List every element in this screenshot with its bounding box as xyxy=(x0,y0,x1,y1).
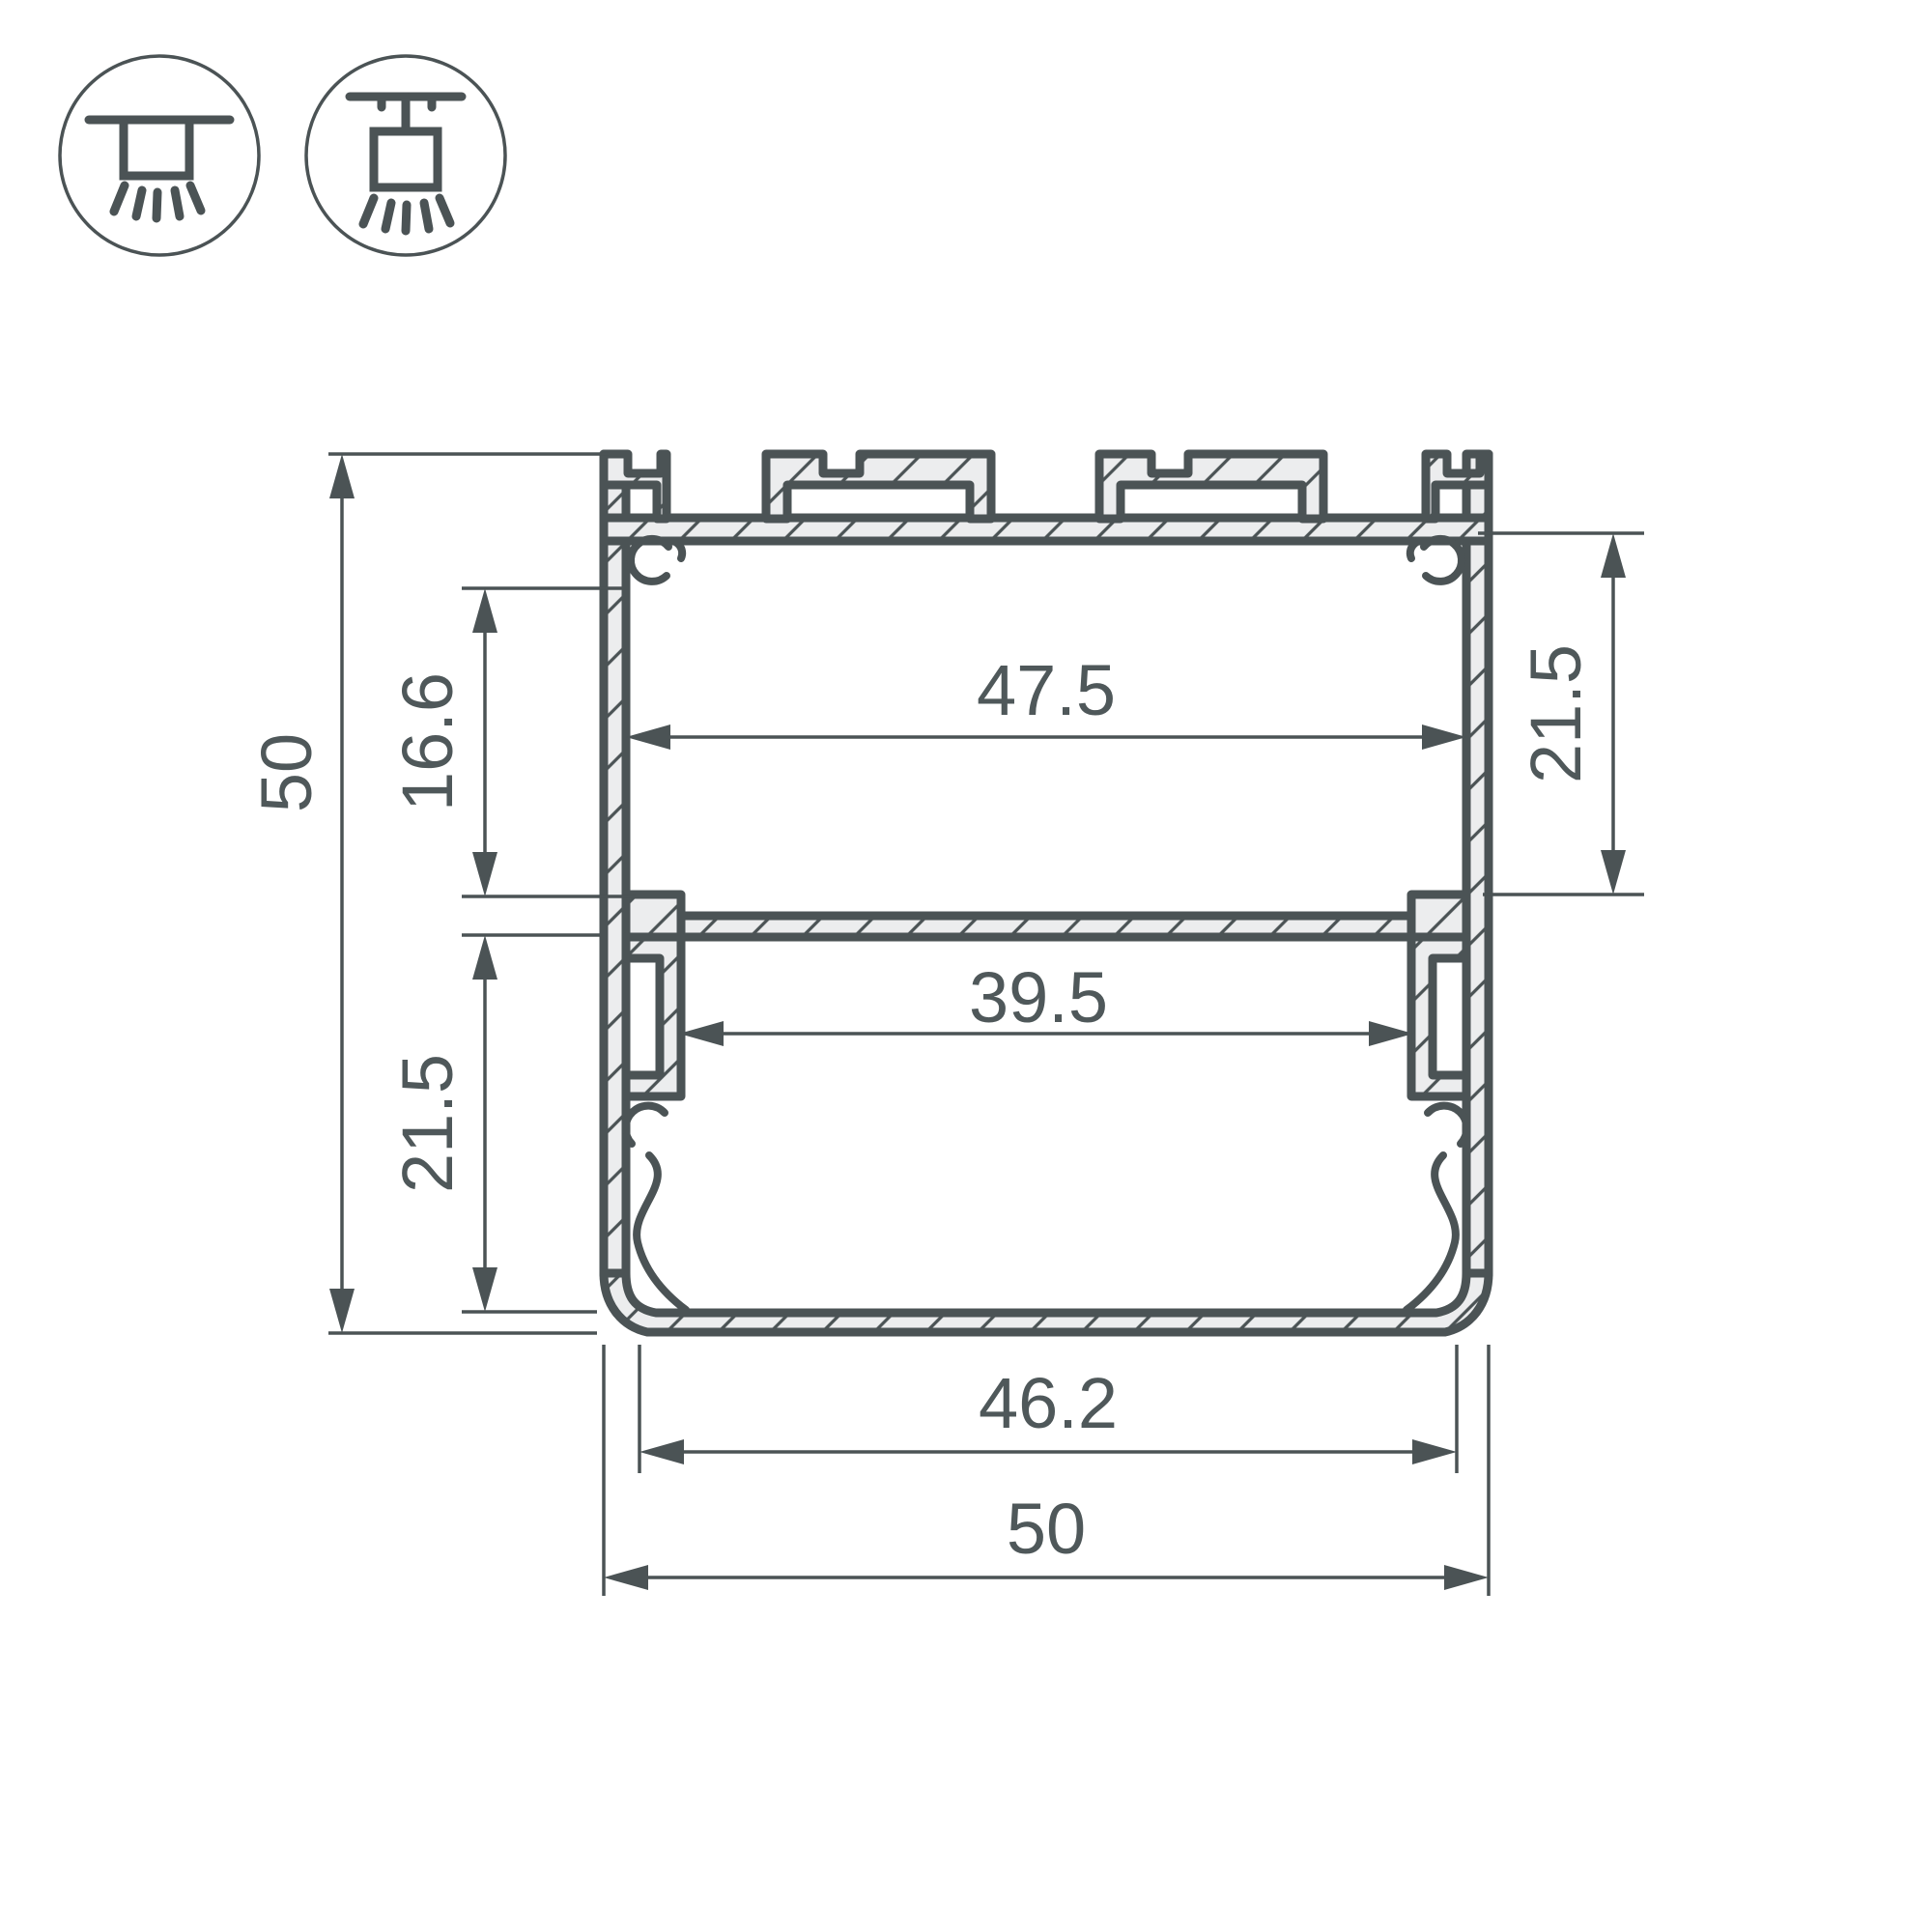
spring-clip-curl-left xyxy=(626,1106,665,1144)
profile-cross-section-drawing: 50 16.6 21.5 47.5 xyxy=(0,0,1932,1932)
dim-label-bottom-opening-width: 46.2 xyxy=(979,1363,1118,1443)
dim-upper-chamber-width: 47.5 xyxy=(626,650,1466,750)
top-tab-left xyxy=(766,454,991,519)
channel-bracket-left xyxy=(626,937,681,1096)
dim-upper-side-inset: 16.6 xyxy=(387,588,636,896)
shelf-lip-right xyxy=(1411,895,1466,937)
dim-label-overall-height: 50 xyxy=(246,733,327,812)
dim-label-upper-side-inset: 16.6 xyxy=(387,672,468,811)
dim-bottom-opening-width: 46.2 xyxy=(639,1345,1457,1473)
dim-label-lower-chamber-width: 39.5 xyxy=(969,957,1108,1037)
screw-boss-top-right xyxy=(1410,539,1462,582)
fixture-box xyxy=(374,131,438,187)
spring-clip-leaf-right xyxy=(1406,1155,1456,1310)
spring-clip-curl-right xyxy=(1428,1106,1466,1144)
shelf-lip-left xyxy=(626,895,681,937)
fixture-box xyxy=(124,122,189,176)
icon-circle xyxy=(60,56,259,255)
dim-overall-height: 50 xyxy=(246,454,609,1333)
mounting-icons xyxy=(60,56,505,255)
dim-label-overall-width: 50 xyxy=(1007,1489,1086,1569)
suspended-pendant-mount-icon xyxy=(306,56,505,255)
spring-clip-leaf-left xyxy=(637,1155,686,1310)
top-base-plate xyxy=(604,518,1489,541)
middle-shelf xyxy=(626,916,1466,937)
light-rays xyxy=(114,185,201,218)
profile-body xyxy=(604,454,1489,1332)
bottom-diffuser-tray xyxy=(604,1273,1489,1332)
surface-ceiling-mount-icon xyxy=(60,56,259,255)
light-rays xyxy=(363,198,450,231)
top-tab-right xyxy=(1099,454,1323,519)
dim-upper-chamber-height-right: 21.5 xyxy=(1478,533,1644,895)
dim-label-upper-chamber-height-right: 21.5 xyxy=(1516,644,1596,783)
dim-label-lower-chamber-height: 21.5 xyxy=(387,1054,468,1193)
left-wall xyxy=(604,454,626,1275)
dim-lower-chamber-height: 21.5 xyxy=(387,935,601,1312)
right-wall xyxy=(1466,454,1489,1275)
dim-lower-chamber-width: 39.5 xyxy=(679,945,1413,1055)
screw-boss-top-left xyxy=(631,539,682,582)
channel-bracket-right xyxy=(1411,937,1466,1096)
dim-label-upper-chamber-width: 47.5 xyxy=(977,650,1116,730)
technical-drawing-page: 50 16.6 21.5 47.5 xyxy=(0,0,1932,1932)
